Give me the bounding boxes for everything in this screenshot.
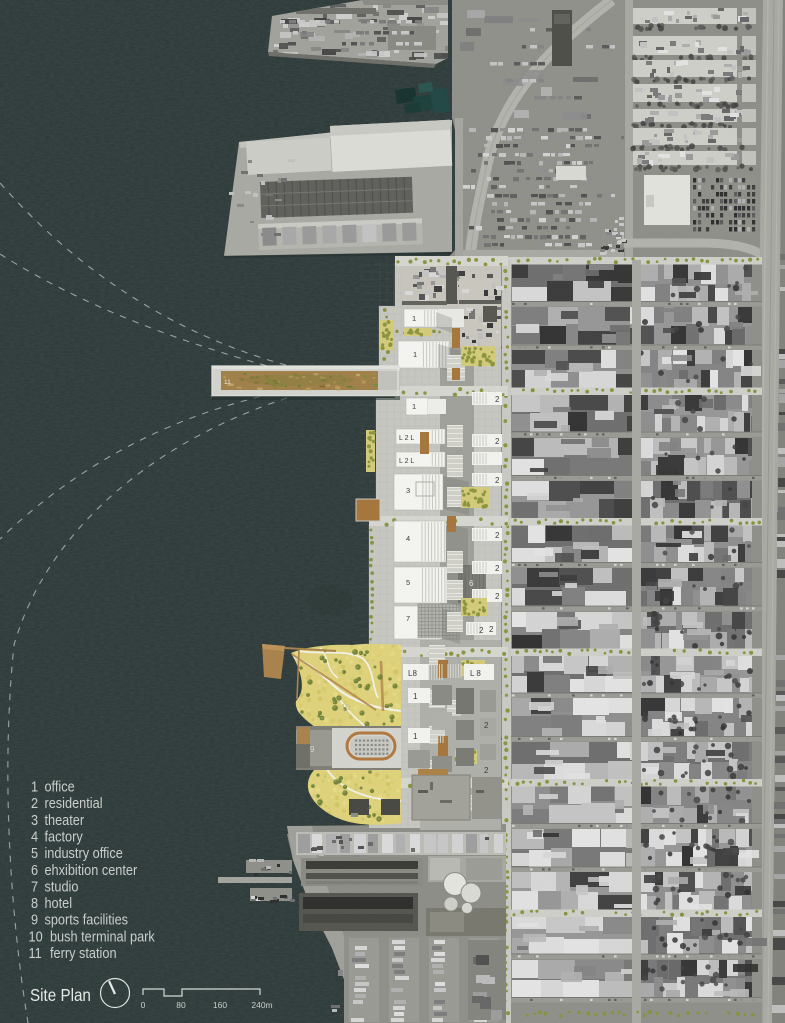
svg-text:11ferry station: 11ferry station — [29, 945, 117, 961]
svg-text:1office: 1office — [31, 779, 75, 795]
svg-text:6ehxibition center: 6ehxibition center — [31, 862, 138, 878]
svg-text:Site Plan: Site Plan — [30, 986, 91, 1005]
svg-text:160: 160 — [213, 1000, 227, 1010]
svg-text:240m: 240m — [251, 1000, 272, 1010]
svg-text:0: 0 — [141, 1000, 146, 1010]
svg-text:9sports facilities: 9sports facilities — [31, 912, 128, 928]
svg-text:8hotel: 8hotel — [31, 895, 72, 911]
svg-text:5industry office: 5industry office — [31, 845, 123, 861]
svg-text:80: 80 — [176, 1000, 186, 1010]
